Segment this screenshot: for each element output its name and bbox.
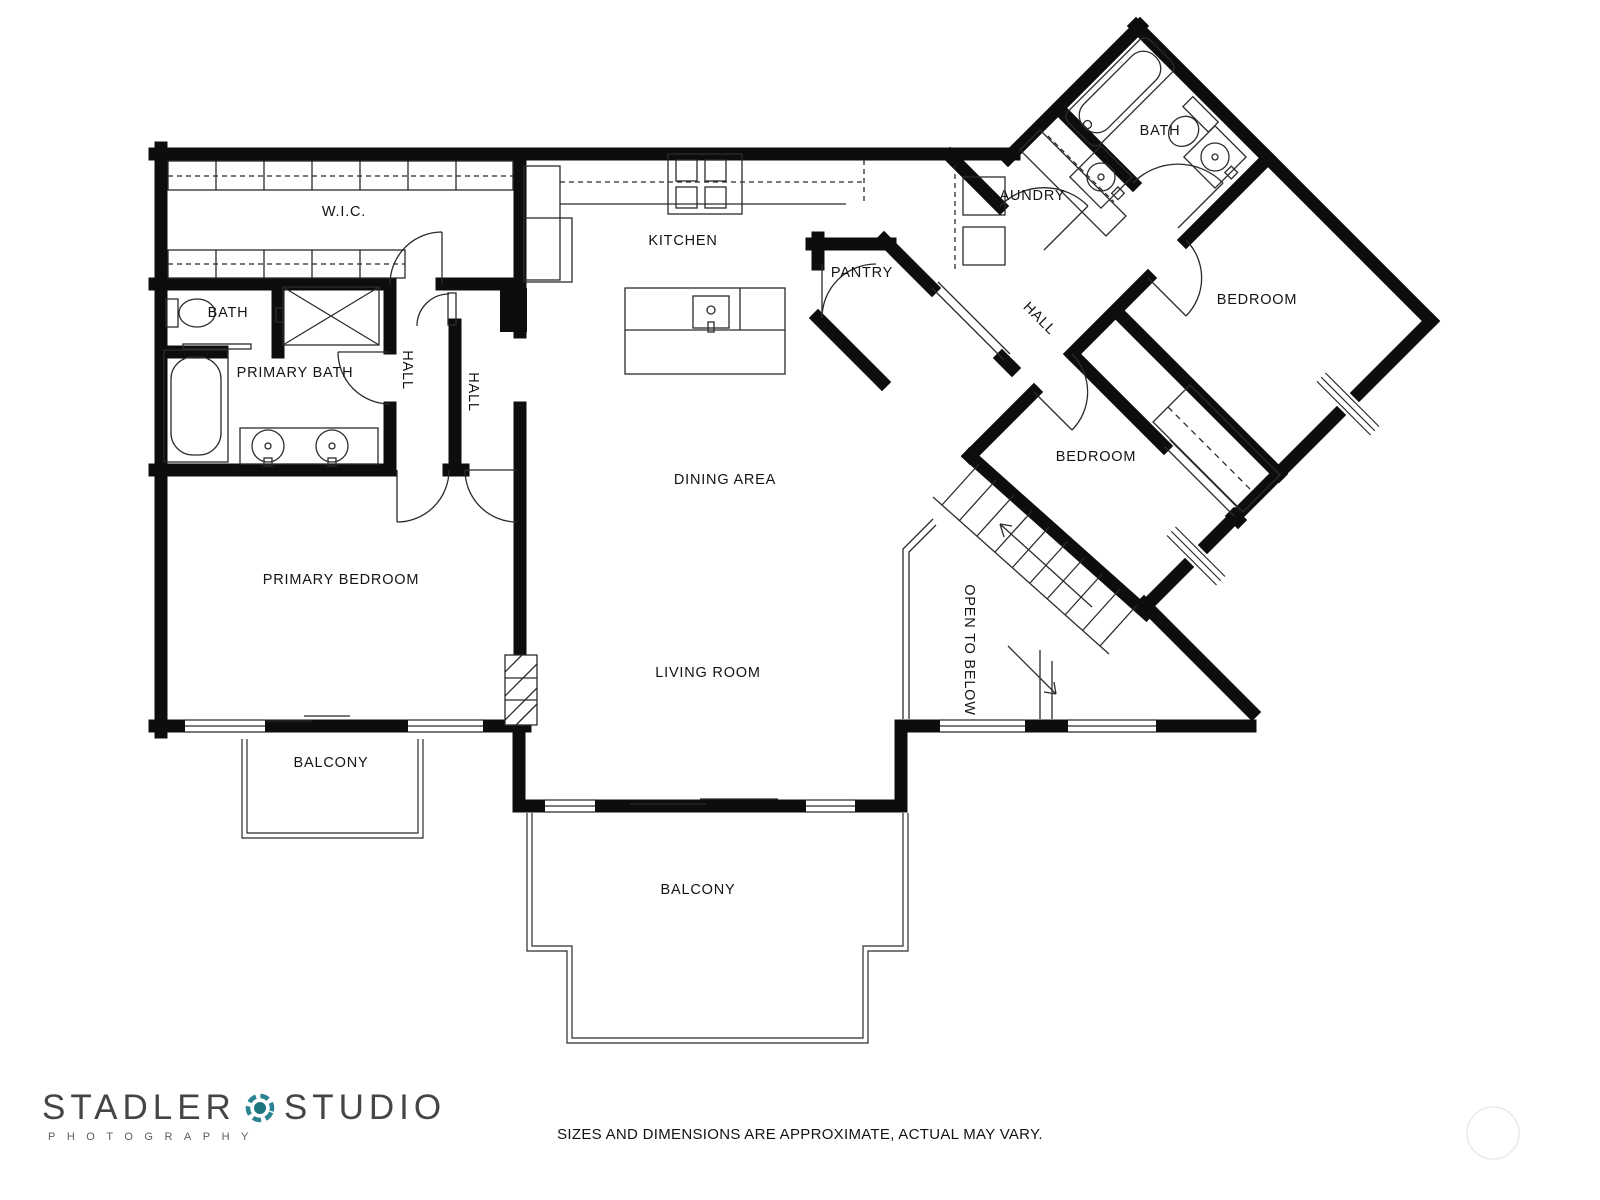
door-arcs (338, 232, 876, 522)
room-label-bath-top: BATH (1140, 123, 1181, 139)
balcony-main-outline (527, 813, 908, 1043)
room-label-dining-area: DINING AREA (674, 472, 776, 488)
floor-plan-drawing: W.I.C. KITCHEN PANTRY LAUNDRY BATH HALL … (0, 0, 1600, 1200)
room-label-hall-2: HALL (465, 372, 481, 411)
room-label-laundry: LAUNDRY (991, 188, 1066, 204)
room-label-kitchen: KITCHEN (648, 233, 717, 249)
wall-block (500, 288, 527, 332)
camera-aperture-icon (243, 1091, 277, 1125)
room-labels: W.I.C. KITCHEN PANTRY LAUNDRY BATH HALL … (208, 123, 1298, 898)
fireplace (505, 655, 537, 725)
room-label-open-to-below: OPEN TO BELOW (961, 584, 977, 716)
walls (155, 26, 1431, 806)
sliding-door (932, 282, 1010, 360)
room-label-primary-bedroom: PRIMARY BEDROOM (263, 572, 420, 588)
balcony-left-outline (242, 739, 423, 838)
laundry-counter (1020, 130, 1136, 236)
kitchen-island (625, 288, 785, 374)
floor-plan-page: W.I.C. KITCHEN PANTRY LAUNDRY BATH HALL … (0, 0, 1600, 1200)
logo-word-stadler: STADLER (42, 1088, 236, 1128)
vanity-sinks (240, 428, 378, 466)
room-label-pantry: PANTRY (831, 265, 893, 281)
shower (276, 287, 379, 345)
disclaimer-text: SIZES AND DIMENSIONS ARE APPROXIMATE, AC… (0, 1126, 1600, 1143)
windows (185, 371, 1381, 814)
logo-word-studio: STUDIO (284, 1088, 446, 1128)
stove (668, 154, 742, 214)
room-label-bedroom-middle: BEDROOM (1056, 449, 1137, 465)
room-label-balcony-main: BALCONY (661, 882, 736, 898)
room-label-hall-diagonal: HALL (1020, 299, 1059, 338)
room-label-hall-1: HALL (399, 350, 415, 389)
room-label-bath-left: BATH (208, 305, 249, 321)
room-label-living-room: LIVING ROOM (655, 665, 760, 681)
bathtub (164, 350, 228, 462)
open-to-below-rail (903, 519, 1056, 719)
room-label-balcony-left: BALCONY (294, 755, 369, 771)
room-label-bedroom-top: BEDROOM (1217, 292, 1298, 308)
room-label-primary-bath: PRIMARY BATH (237, 365, 354, 381)
room-label-wic: W.I.C. (322, 204, 366, 220)
